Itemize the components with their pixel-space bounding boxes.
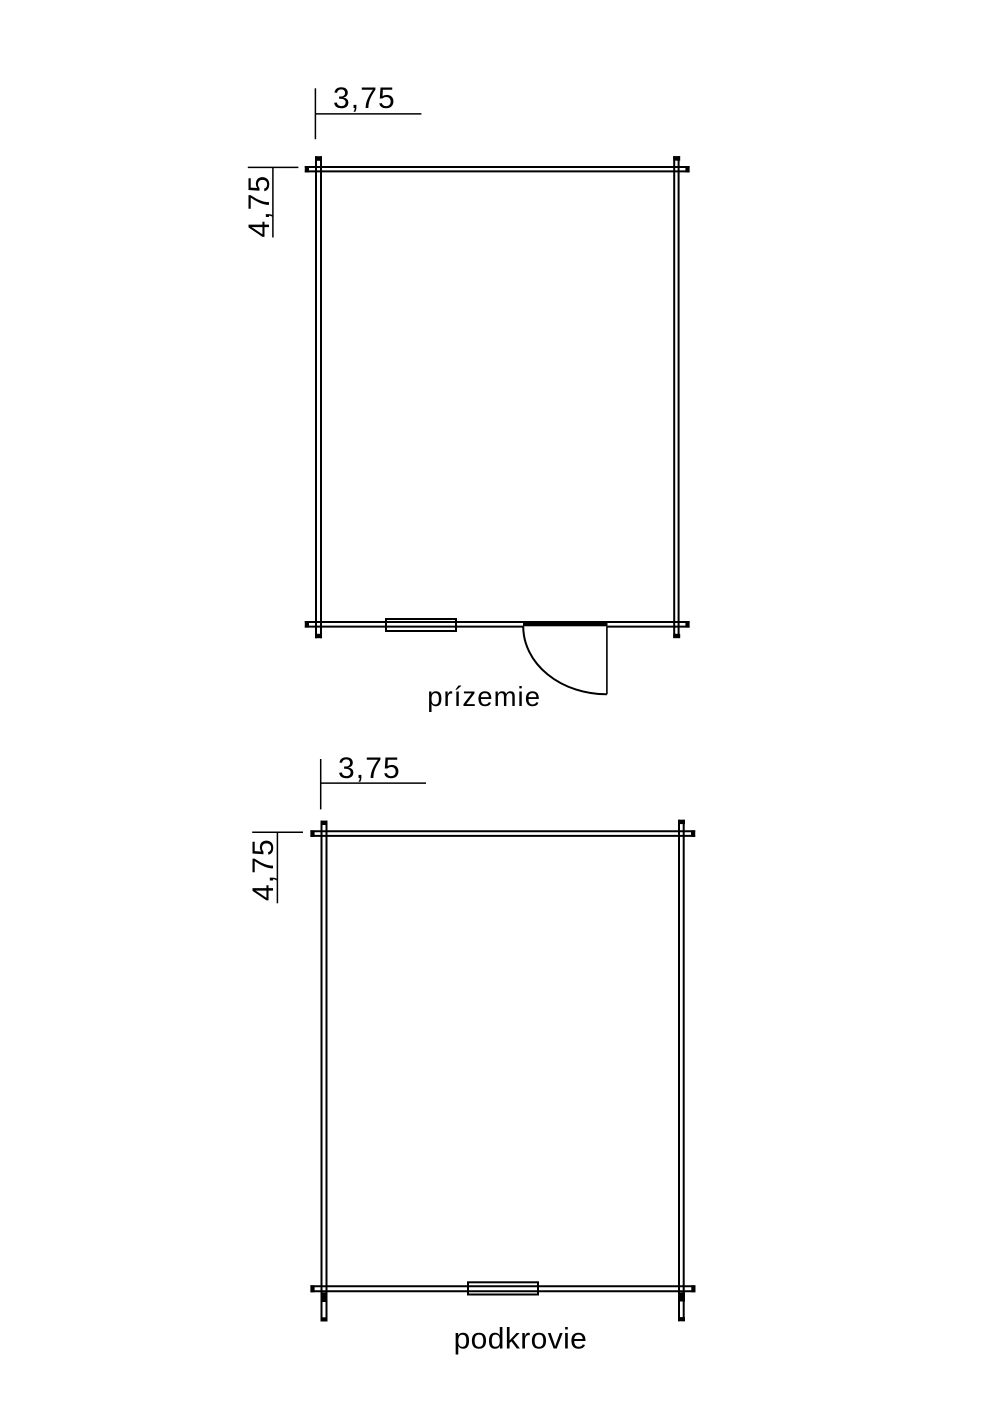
svg-text:podkrovie: podkrovie xyxy=(454,1322,588,1355)
svg-text:4,75: 4,75 xyxy=(247,838,280,901)
svg-text:4,75: 4,75 xyxy=(243,175,276,238)
svg-text:3,75: 3,75 xyxy=(333,82,396,115)
svg-text:prízemie: prízemie xyxy=(427,681,541,712)
svg-text:3,75: 3,75 xyxy=(338,752,401,785)
